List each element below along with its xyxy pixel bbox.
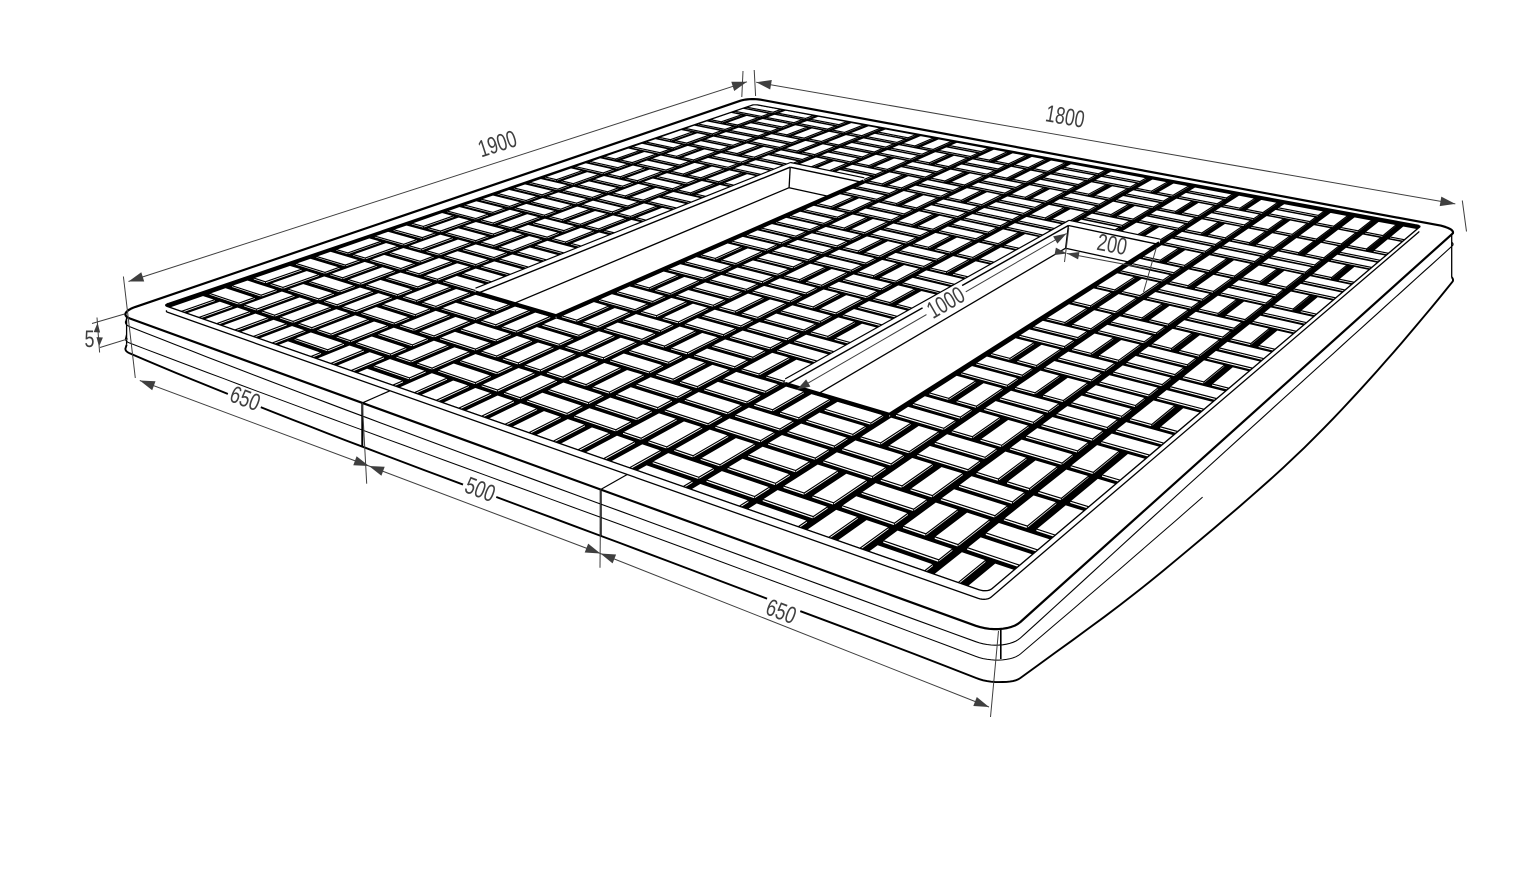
svg-text:5: 5: [85, 326, 95, 353]
svg-text:200: 200: [1095, 229, 1129, 261]
